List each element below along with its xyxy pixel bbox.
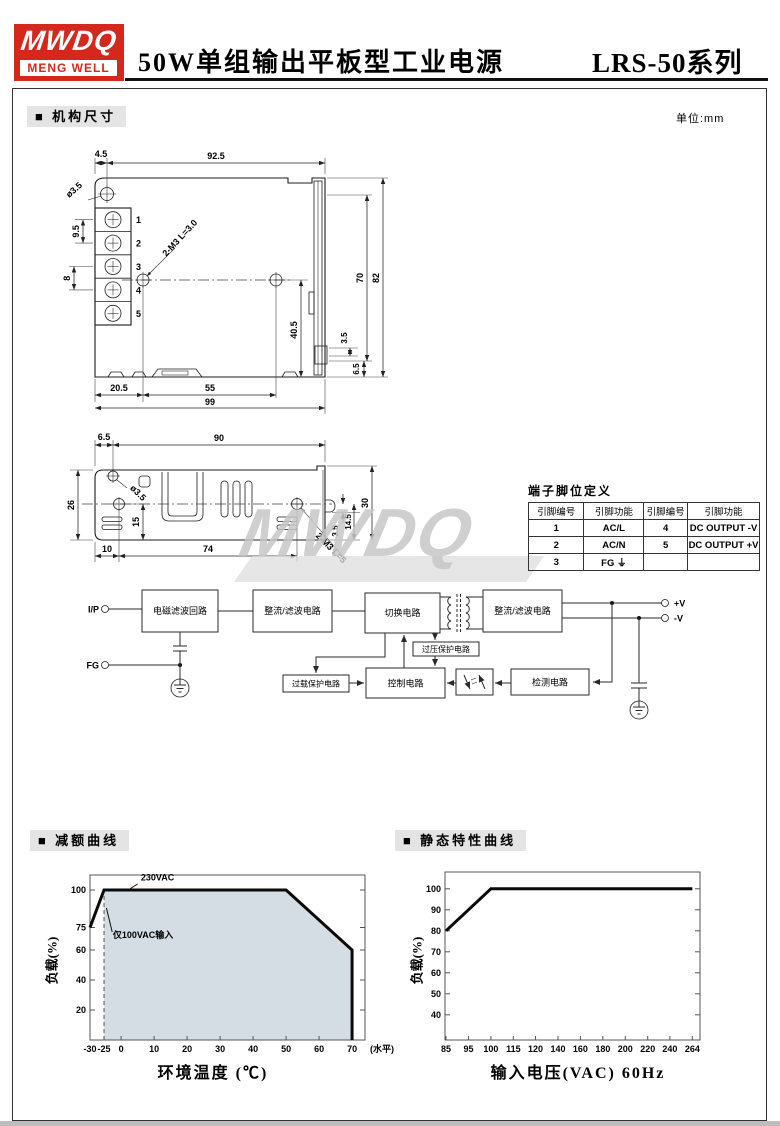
dim-70: 70 [355,273,365,283]
series-title: LRS-50系列 [592,41,743,80]
section-static: ■ 静态特性曲线 [395,830,526,850]
x-tick-label: 30 [215,1044,225,1054]
vneg-label: -V [674,614,683,624]
y-tick-label: 100 [71,885,86,895]
dim-40.5: 40.5 [289,321,299,339]
x-tick-label: 0 [119,1044,124,1054]
x-tick-label: 220 [640,1044,655,1054]
block-diagram: I/P FG 电磁滤波回路 整流/滤波电路 切换电路 [55,580,735,730]
x-tick-label: 200 [618,1044,633,1054]
fg-label: FG [87,661,100,671]
derating-ylabel: 负载(%) [42,916,61,1006]
pin-cell: 4 [644,520,688,537]
x-tick-label: 100 [483,1044,498,1054]
pin-number: 5 [136,309,141,319]
y-tick-label: 60 [76,945,86,955]
y-tick-label: 20 [76,1005,86,1015]
mounting-holes-center [122,272,292,288]
x-tick-label: 180 [595,1044,610,1054]
x-tick-label: 20 [182,1044,192,1054]
dim-6.5: 6.5 [352,363,361,375]
logo-subtext: MENG WELL [20,60,117,76]
pin-cell: FG ⏚ [584,554,644,571]
dim-10: 10 [102,544,112,554]
curve-load-vs-input-voltage [446,889,692,931]
pin-number: 2 [136,239,141,249]
y-tick-label: 75 [76,923,86,933]
annotation-leader [129,884,137,889]
pin-cell: 5 [644,537,688,554]
dim-9.5: 9.5 [71,225,81,238]
dim-4.5: 4.5 [95,149,108,159]
table-row: 1 AC/L 4 DC OUTPUT -V [529,520,760,537]
brand-logo: MWDQ MENG WELL [14,24,124,81]
table-row: 3 FG ⏚ [529,554,760,571]
control-box: 控制电路 [387,678,423,689]
x-tick-label: 115 [506,1044,521,1054]
static-ylabel: 负载(%) [407,916,426,1006]
x-tick-label: 160 [573,1044,588,1054]
y-tick-label: 70 [431,947,441,957]
pin-cell: DC OUTPUT +V [688,537,760,554]
table-row: 2 AC/N 5 DC OUTPUT +V [529,537,760,554]
pin-number: 4 [136,286,141,296]
shaded-operating-region [104,890,352,1040]
derating-chart: -30-2501020304050607020406075100230VAC仅1… [28,855,398,1105]
detection-box: 检测电路 [532,677,568,688]
front-view-drawing: 1 2 3 4 5 4.5 92.5 [20,140,410,432]
dim-6.5t: 6.5 [98,432,111,442]
x-axis-suffix-label: (水平) [370,1043,394,1054]
pin-table-header: 引脚编号 [529,503,584,520]
earth-ground-icon [630,701,648,719]
earth-ground-icon [171,679,189,697]
pin-table-header: 引脚功能 [688,503,760,520]
pin-number: 1 [136,215,141,225]
pin-cell [688,554,760,571]
bottom-feet [108,369,298,377]
pin-number: 3 [136,262,141,272]
ovp-box: 过压保护电路 [422,644,470,654]
ip-label: I/P [88,605,99,615]
x-tick-label: 10 [149,1044,159,1054]
datasheet-page: MWDQ MENG WELL 50W单组输出平板型工业电源 LRS-50系列 ■… [0,0,780,1126]
y-tick-label: 40 [76,975,86,985]
x-tick-label: 95 [463,1044,473,1054]
emi-filter-box: 电磁滤波回路 [153,605,207,616]
terminal-screw [105,212,121,322]
static-chart-plot: 8595100115120140160180200220240264405060… [393,855,763,1057]
section-mechanical-label: ■ 机构尺寸 [27,106,126,127]
dim-dia3.5: ø3.5 [64,180,84,199]
dim-26: 26 [66,500,76,510]
pin-cell: 1 [529,520,584,537]
x-tick-label: -30 [83,1044,96,1054]
pin-cell: AC/N [584,537,644,554]
dim-8: 8 [62,276,72,281]
switching-box: 切换电路 [384,607,420,618]
rectifier2-box: 整流/滤波电路 [494,605,551,616]
x-tick-label: 264 [685,1044,700,1054]
dim-82: 82 [371,273,381,283]
annotation-text: 仅100VAC输入 [112,929,173,940]
x-tick-label: 40 [248,1044,258,1054]
section-derating-label: ■ 减额曲线 [30,830,129,851]
dim-15: 15 [131,517,141,527]
y-tick-label: 60 [431,968,441,978]
pin-table: 端子脚位定义 引脚编号 引脚功能 引脚编号 引脚功能 1 AC/L 4 DC O… [528,482,764,571]
dim-tap-label: 2-M3 L=3.0 [160,218,199,259]
header-rule [125,78,768,81]
terminal-block: 1 2 3 4 5 [95,208,141,325]
unit-label: 单位:mm [676,110,724,126]
pin-cell: 2 [529,537,584,554]
x-tick-label: 70 [347,1044,357,1054]
section-derating: ■ 减额曲线 [30,830,129,850]
logo-subtext-box: MENG WELL [20,60,117,76]
x-tick-label: 50 [281,1044,291,1054]
dim-90: 90 [214,433,224,443]
dim-3.5: 3.5 [340,332,349,344]
page-title: 50W单组输出平板型工业电源 [138,42,504,79]
dim-99: 99 [205,397,215,407]
x-tick-label: 60 [314,1044,324,1054]
derating-chart-plot: -30-2501020304050607020406075100230VAC仅1… [28,855,398,1057]
derating-xlabel: 环境温度 (℃) [28,1059,398,1083]
watermark-text: MWDQ [234,494,481,572]
mounting-hole-topleft [98,185,116,203]
static-xlabel: 输入电压(VAC) 60Hz [393,1059,763,1083]
y-tick-label: 50 [431,989,441,999]
x-tick-label: -25 [98,1044,111,1054]
vpos-label: +V [674,599,685,609]
dim-74: 74 [203,544,213,554]
y-tick-label: 90 [431,905,441,915]
annotation-text: 230VAC [141,872,175,882]
x-tick-label: 140 [550,1044,565,1054]
dim-92.5: 92.5 [207,151,225,161]
pin-cell: DC OUTPUT -V [688,520,760,537]
logo-text: MWDQ [12,25,126,57]
y-tick-label: 100 [426,884,441,894]
pin-cell: 3 [529,554,584,571]
dim-55: 55 [205,383,215,393]
pin-cell [644,554,688,571]
dim-dia3.5t: ø3.5 [128,483,148,503]
y-tick-label: 80 [431,926,441,936]
optocoupler-icon [456,669,493,695]
section-static-label: ■ 静态特性曲线 [395,830,526,851]
olp-box: 过载保护电路 [292,679,340,689]
section-mechanical: ■ 机构尺寸 [27,106,126,126]
x-tick-label: 85 [441,1044,451,1054]
pin-table-header: 引脚编号 [644,503,688,520]
pin-cell: AC/L [584,520,644,537]
pin-table-header: 引脚功能 [584,503,644,520]
x-tick-label: 120 [528,1044,543,1054]
static-chart: 8595100115120140160180200220240264405060… [393,855,763,1105]
rectifier1-box: 整流/滤波电路 [264,605,321,616]
diagram-boxes: 电磁滤波回路 整流/滤波电路 切换电路 整流/滤波电路 过压保护电路 过载保护电… [142,590,589,698]
page-bottom-edge [0,1121,780,1126]
x-tick-label: 240 [662,1044,677,1054]
transformer-icon [440,594,483,632]
pin-table-title: 端子脚位定义 [528,482,764,499]
dim-20.5: 20.5 [110,383,128,393]
y-tick-label: 40 [431,1010,441,1020]
